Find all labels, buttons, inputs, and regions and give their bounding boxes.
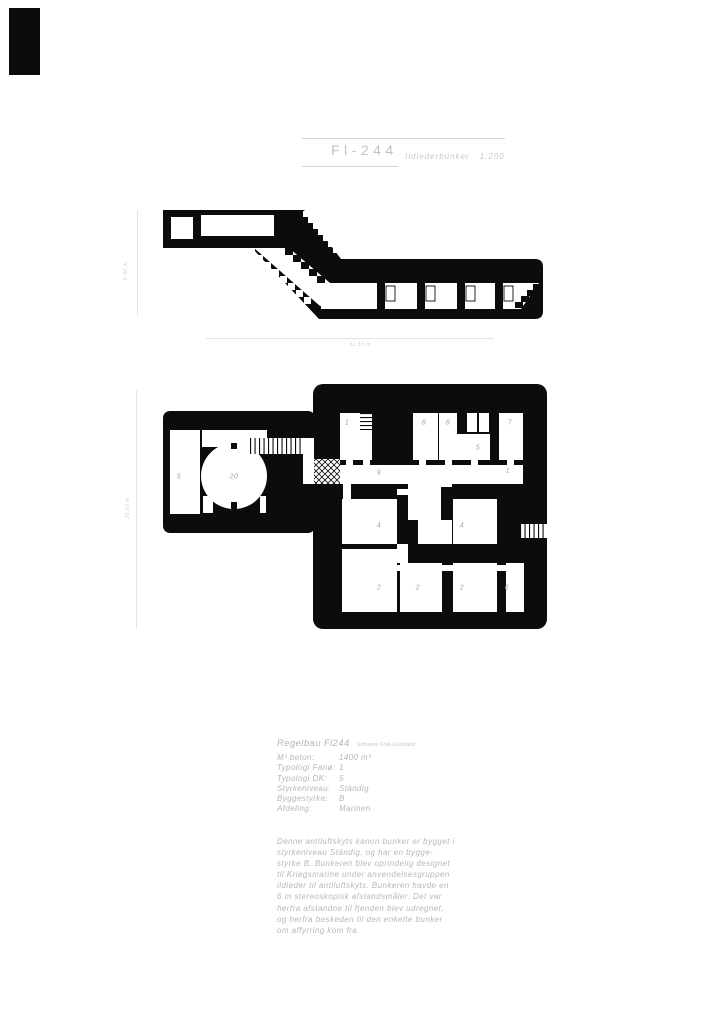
spec-row: M³ beton:1400 m³ (277, 753, 497, 763)
paragraph-line: 6 m stereoskopisk afstandsmåler. Det var (277, 891, 502, 902)
room-label: 1 (506, 468, 510, 475)
paragraph-line: om affyrring kom fra. (277, 925, 502, 936)
spec-row: Byggestyrke:B (277, 794, 497, 804)
room-label: 2 (416, 585, 420, 592)
room-label: 5 (476, 445, 480, 452)
plan-height-label: 20.00 m (125, 488, 131, 528)
spec-label: Styrkeniveau: (277, 784, 339, 794)
section-width-label: 31.50 m (330, 342, 390, 348)
sheet-subtitle: Ildlederbunker1:200 (405, 152, 505, 161)
section-dim-line-horizontal (206, 338, 494, 339)
room-label: 8 (422, 420, 426, 427)
description-paragraph: Denne antiluftskyts kanon bunker er bygg… (277, 836, 502, 936)
plan-dim-line-vertical (136, 390, 137, 628)
bunker-type-note: Schwere Flak-Leitstand (357, 742, 416, 748)
room-label: 9 (377, 470, 381, 477)
paragraph-line: herfra afstandne til fjenden blev udregn… (277, 903, 502, 914)
paragraph-line: og herfra beskeden til den enkelte bunke… (277, 914, 502, 925)
spec-value: 1 (339, 763, 344, 773)
spec-row: Styrkeniveau:Ständig (277, 784, 497, 794)
spec-value: 1400 m³ (339, 753, 371, 763)
room-label: 5 (177, 474, 181, 481)
subtitle-text: Ildlederbunker (405, 152, 470, 161)
corner-tab (9, 8, 40, 75)
spec-value: B (339, 794, 345, 804)
section-drawing (155, 202, 555, 327)
room-label: 2 (377, 585, 381, 592)
spec-row: Typologi DK:5 (277, 774, 497, 784)
spec-row: Afdeling:Marinen (277, 804, 497, 814)
room-label: 20 (230, 474, 239, 481)
spec-table: M³ beton:1400 m³ Typologi Fanø:1 Typolog… (277, 753, 497, 815)
spec-row: Typologi Fanø:1 (277, 763, 497, 773)
title-rule-top (302, 138, 505, 139)
page-title: Fl-244 (331, 142, 398, 158)
title-rule-bottom (302, 166, 398, 167)
bunker-type-heading: Regelbau Fl244 (277, 738, 350, 749)
info-heading: Regelbau Fl244Schwere Flak-Leitstand (277, 733, 416, 751)
section-dim-line-vertical (137, 210, 138, 316)
room-label: 4 (460, 523, 464, 530)
room-label: 2 (460, 585, 464, 592)
paragraph-line: Denne antiluftskyts kanon bunker er bygg… (277, 836, 502, 847)
spec-label: Afdeling: (277, 804, 339, 814)
room-label: 6 (505, 585, 509, 592)
room-label: 4 (377, 523, 381, 530)
spec-label: Typologi DK: (277, 774, 339, 784)
paragraph-line: styrke B. Bunkeren blev oprindelig desig… (277, 858, 502, 869)
paragraph-line: ildleder til antiluftskyts. Bunkeren hav… (277, 880, 502, 891)
spec-value: 5 (339, 774, 344, 784)
room-label: 8 (446, 420, 450, 427)
drawing-scale: 1:200 (480, 152, 505, 161)
spec-value: Ständig (339, 784, 369, 794)
floor-plan-drawing (160, 381, 550, 632)
paragraph-line: styrkeniveau Ständig, og har en bygge- (277, 847, 502, 858)
spec-value: Marinen (339, 804, 371, 814)
spec-label: Byggestyrke: (277, 794, 339, 804)
spec-label: Typologi Fanø: (277, 763, 339, 773)
room-label: 1 (345, 420, 349, 427)
paragraph-line: til Kriegsmarine under anvendelsesgruppe… (277, 869, 502, 880)
room-label: 7 (508, 420, 512, 427)
section-height-label: 8.30 m (123, 251, 129, 291)
spec-label: M³ beton: (277, 753, 339, 763)
